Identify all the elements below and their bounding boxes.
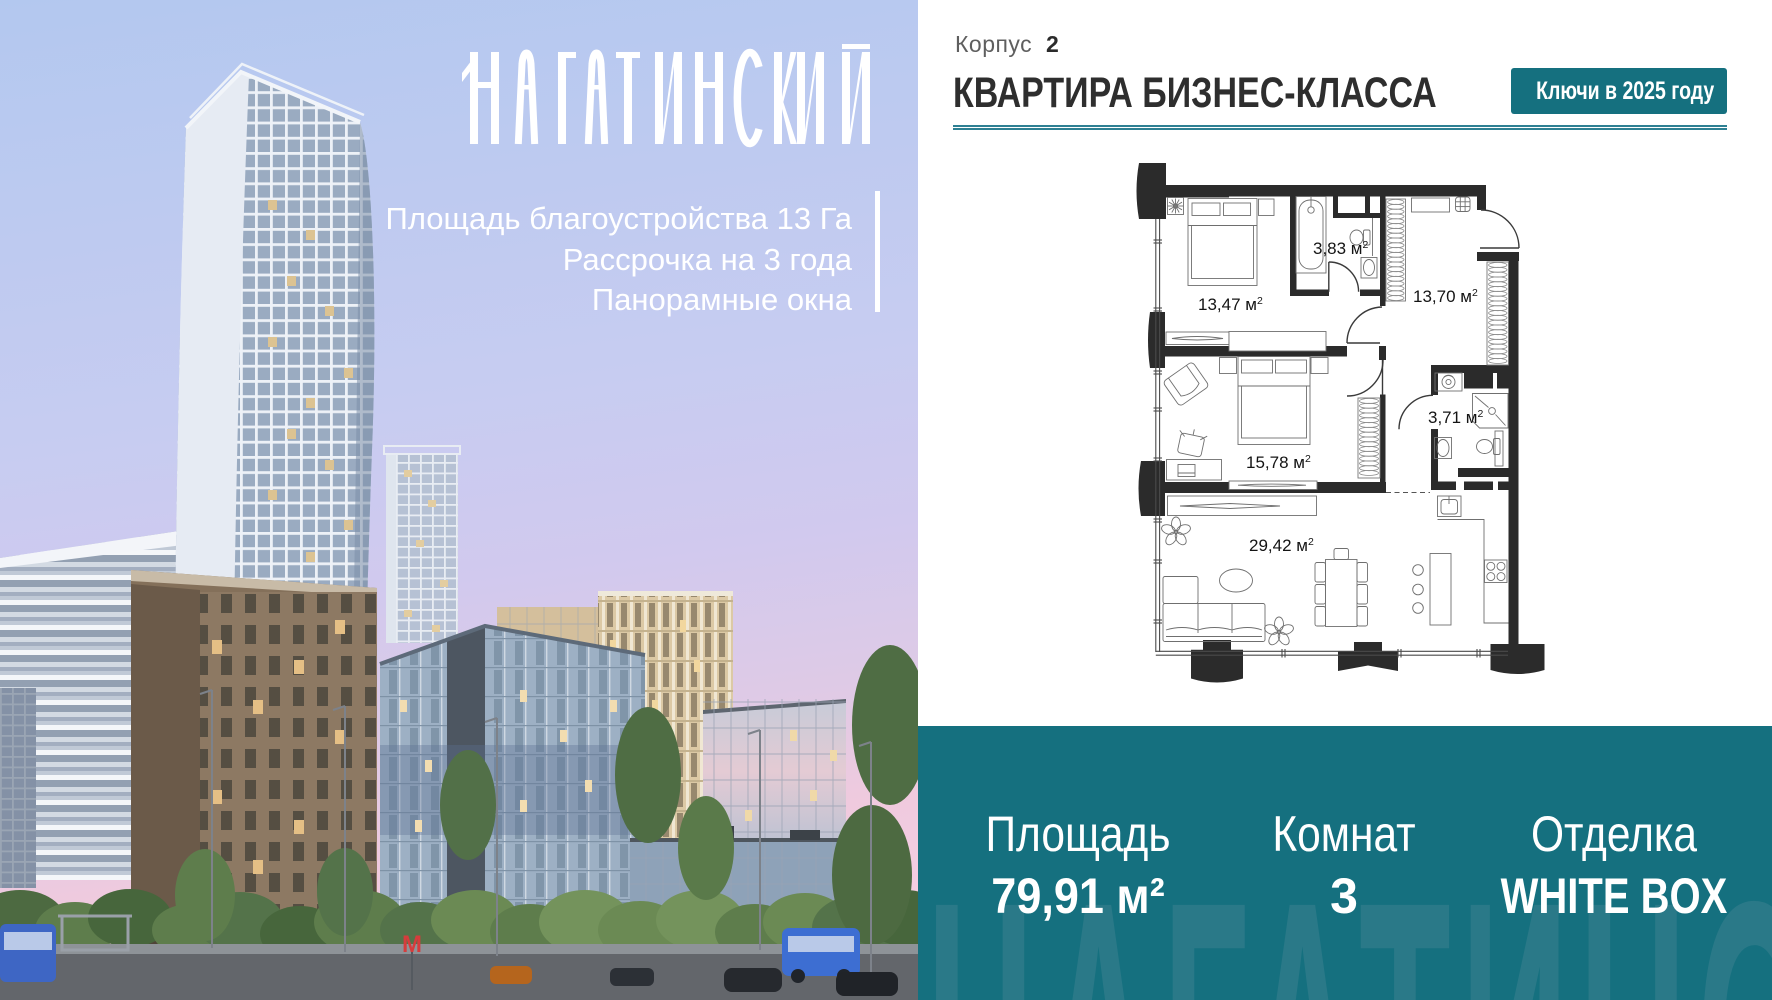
svg-text:29,42 м2: 29,42 м2 bbox=[1249, 536, 1314, 555]
svg-text:13,70 м2: 13,70 м2 bbox=[1413, 287, 1478, 306]
svg-text:13,47 м2: 13,47 м2 bbox=[1198, 295, 1263, 314]
svg-text:3,83 м2: 3,83 м2 bbox=[1313, 239, 1369, 258]
svg-text:3,71 м2: 3,71 м2 bbox=[1428, 408, 1484, 427]
svg-text:15,78 м2: 15,78 м2 bbox=[1246, 453, 1311, 472]
